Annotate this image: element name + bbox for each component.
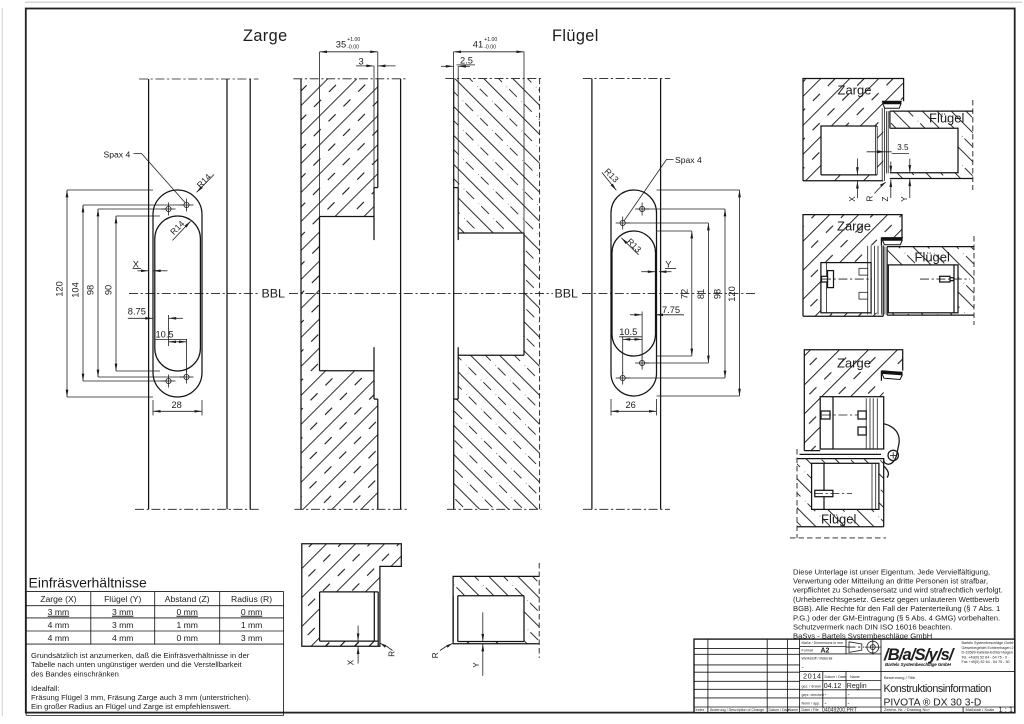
- svg-text:Diese Unterlage ist unser Eige: Diese Unterlage ist unser Eigentum. Jede…: [793, 567, 990, 576]
- svg-text:Y: Y: [665, 259, 671, 269]
- svg-text:-: -: [802, 664, 804, 671]
- svg-text:28: 28: [172, 400, 182, 410]
- svg-text:Werkstoff / Material: Werkstoff / Material: [802, 657, 833, 661]
- svg-text:1 : 1: 1 : 1: [999, 705, 1014, 714]
- svg-text:+1.00: +1.00: [347, 37, 360, 43]
- svg-text:Zarge: Zarge: [243, 27, 288, 45]
- svg-text:Fax +49(0) 52 64 - 64 75 - 3: Fax +49(0) 52 64 - 64 75 - 30: [962, 660, 1010, 664]
- svg-text:X: X: [346, 659, 355, 665]
- svg-text:BBL: BBL: [555, 287, 579, 301]
- svg-text:-0.00: -0.00: [484, 45, 496, 51]
- svg-text:Flügel: Flügel: [929, 110, 965, 125]
- svg-text:0 mm: 0 mm: [241, 607, 262, 617]
- svg-text:+1.00: +1.00: [484, 37, 497, 43]
- svg-text:R: R: [388, 651, 397, 657]
- svg-text:Maße / Dimensions in mm: Maße / Dimensions in mm: [802, 641, 844, 645]
- svg-text:7.75: 7.75: [662, 305, 680, 315]
- svg-text:(Urheberrechtsgesetz. Gesetz g: (Urheberrechtsgesetz. Gesetz gegen unlau…: [793, 595, 999, 604]
- svg-text:8.75: 8.75: [128, 307, 146, 317]
- svg-text:Name: Name: [789, 708, 799, 712]
- svg-text:41: 41: [473, 39, 483, 49]
- svg-text:90: 90: [104, 285, 114, 295]
- svg-text:Flügel: Flügel: [915, 249, 951, 264]
- svg-text:Maßstab / Scale: Maßstab / Scale: [966, 707, 996, 712]
- svg-text:Spax 4: Spax 4: [104, 149, 131, 159]
- svg-text:0 mm: 0 mm: [176, 607, 197, 617]
- svg-text:Schutzvermerk nach DIN ISO 160: Schutzvermerk nach DIN ISO 16016 beachte…: [793, 623, 952, 632]
- svg-text:Bartels Systembeschläge GmbH: Bartels Systembeschläge GmbH: [885, 662, 952, 667]
- svg-text:Z: Z: [881, 196, 890, 201]
- svg-text:Spax 4: Spax 4: [675, 155, 702, 165]
- svg-text:Änderung / Description of Chan: Änderung / Description of Change: [710, 708, 764, 712]
- svg-text:-: -: [825, 693, 827, 699]
- svg-text:Flügel: Flügel: [821, 511, 857, 526]
- svg-text:Idealfall:: Idealfall:: [31, 684, 59, 693]
- svg-text:BGB). Alle Rechte für den Fall: BGB). Alle Rechte für den Fall der Paten…: [793, 604, 1000, 613]
- svg-text:Zarge: Zarge: [837, 219, 871, 234]
- svg-text:-: -: [848, 693, 850, 699]
- svg-text:3: 3: [359, 56, 364, 66]
- svg-text:Fräsung Flügel 3 mm, Fräsung Z: Fräsung Flügel 3 mm, Fräsung Zarge auch …: [31, 693, 251, 702]
- svg-text:1 mm: 1 mm: [241, 620, 262, 630]
- svg-text:Datum / Date: Datum / Date: [825, 675, 846, 679]
- svg-text:Norm / app.: Norm / app.: [802, 702, 821, 706]
- svg-text:verpflichtet zu Schadensersatz: verpflichtet zu Schadensersatz und wird …: [793, 586, 1003, 595]
- svg-text:98: 98: [713, 289, 723, 299]
- svg-text:4 mm: 4 mm: [48, 633, 69, 643]
- svg-text:3 mm: 3 mm: [112, 620, 133, 630]
- svg-text:des Bandes einschränken: des Bandes einschränken: [31, 669, 119, 678]
- svg-text:04.12: 04.12: [824, 683, 842, 690]
- svg-text:Benennung / Title: Benennung / Title: [884, 675, 916, 680]
- svg-text:R: R: [431, 652, 440, 658]
- svg-text:Reglin: Reglin: [847, 683, 867, 690]
- svg-text:Datum / Date: Datum / Date: [769, 708, 790, 712]
- svg-text:X: X: [848, 196, 857, 202]
- svg-text:4 mm: 4 mm: [112, 633, 133, 643]
- svg-text:Y: Y: [472, 662, 481, 668]
- svg-text:Zarge: Zarge: [837, 356, 871, 371]
- svg-text:BBL: BBL: [262, 287, 286, 301]
- svg-text:Tel. +49(0) 52 64 - 64 75 -: Tel. +49(0) 52 64 - 64 75 - 0: [962, 655, 1008, 659]
- svg-text:Flügel: Flügel: [552, 27, 599, 45]
- svg-text:3.5: 3.5: [897, 143, 909, 152]
- svg-text:Format: Format: [802, 649, 813, 653]
- svg-text:2.5: 2.5: [460, 56, 473, 66]
- svg-text:-: -: [825, 701, 827, 707]
- svg-text:3 mm: 3 mm: [241, 633, 262, 643]
- svg-text:gepr. checked: gepr. checked: [802, 693, 824, 697]
- svg-text:120: 120: [727, 286, 737, 302]
- svg-text:gez. / drawn: gez. / drawn: [802, 684, 822, 688]
- svg-text:P.G.) oder der GM-Eintragung (: P.G.) oder der GM-Eintragung (§ 5 Abs. 4…: [793, 613, 1000, 622]
- svg-text:A2: A2: [821, 648, 830, 655]
- svg-text:Zeichn. Nr. / Drawing No.: Zeichn. Nr. / Drawing No.: [884, 707, 929, 712]
- svg-text:35: 35: [336, 39, 346, 49]
- svg-text:2014: 2014: [803, 671, 822, 680]
- svg-text:3 mm: 3 mm: [48, 607, 69, 617]
- svg-text:D-32689 Kalletal-Echternhagen: D-32689 Kalletal-Echternhagen: [962, 651, 1013, 655]
- svg-text:Einfräsverhältnisse: Einfräsverhältnisse: [29, 575, 147, 591]
- svg-text:Konstruktionsinformation: Konstruktionsinformation: [884, 683, 992, 695]
- svg-text:Flügel (Y): Flügel (Y): [104, 594, 141, 604]
- svg-text:-0.00: -0.00: [347, 45, 359, 51]
- svg-text:Verwertung oder Mitteilung an: Verwertung oder Mitteilung an dritte Per…: [793, 577, 988, 586]
- svg-text:Name: Name: [850, 675, 860, 679]
- svg-text:Tabelle nach unten ungünstiger: Tabelle nach unten ungünstiger werden un…: [31, 660, 243, 669]
- svg-text:26: 26: [626, 400, 636, 410]
- svg-text:Gewerbegebiet Echternhagen 2: Gewerbegebiet Echternhagen 2: [962, 646, 1014, 650]
- svg-text:104: 104: [71, 282, 81, 298]
- svg-text:Radius (R): Radius (R): [231, 594, 272, 604]
- svg-text:Grundsätzlich ist anzumerken,: Grundsätzlich ist anzumerken, daß die Ei…: [31, 651, 250, 660]
- svg-text:72: 72: [680, 289, 690, 299]
- svg-text:120: 120: [55, 281, 65, 297]
- svg-text:-: -: [848, 701, 850, 707]
- svg-text:98: 98: [86, 285, 96, 295]
- svg-text:10.5: 10.5: [619, 327, 637, 337]
- svg-text:Abstand (Z): Abstand (Z): [165, 594, 210, 604]
- svg-text:3 mm: 3 mm: [112, 607, 133, 617]
- svg-text:X: X: [133, 259, 139, 269]
- svg-text:Y: Y: [900, 196, 909, 202]
- svg-text:Zarge (X): Zarge (X): [40, 594, 76, 604]
- svg-text:R: R: [866, 195, 875, 201]
- svg-text:Bartels Systembeschläge GmbH: Bartels Systembeschläge GmbH: [962, 641, 1016, 645]
- svg-text:1 mm: 1 mm: [176, 620, 197, 630]
- svg-text:4 mm: 4 mm: [48, 620, 69, 630]
- svg-text:Zarge: Zarge: [838, 83, 872, 98]
- svg-text:81: 81: [696, 289, 706, 299]
- svg-text:-: -: [928, 707, 930, 713]
- svg-text:Ein großer Radius an Flügel un: Ein großer Radius an Flügel und Zarge is…: [31, 702, 231, 711]
- svg-text:Index: Index: [696, 708, 705, 712]
- svg-text:04049200.PRT: 04049200.PRT: [822, 707, 858, 713]
- svg-text:0 mm: 0 mm: [176, 633, 197, 643]
- svg-text:Datei / File: Datei / File: [802, 708, 819, 712]
- svg-text:10.5: 10.5: [156, 329, 174, 339]
